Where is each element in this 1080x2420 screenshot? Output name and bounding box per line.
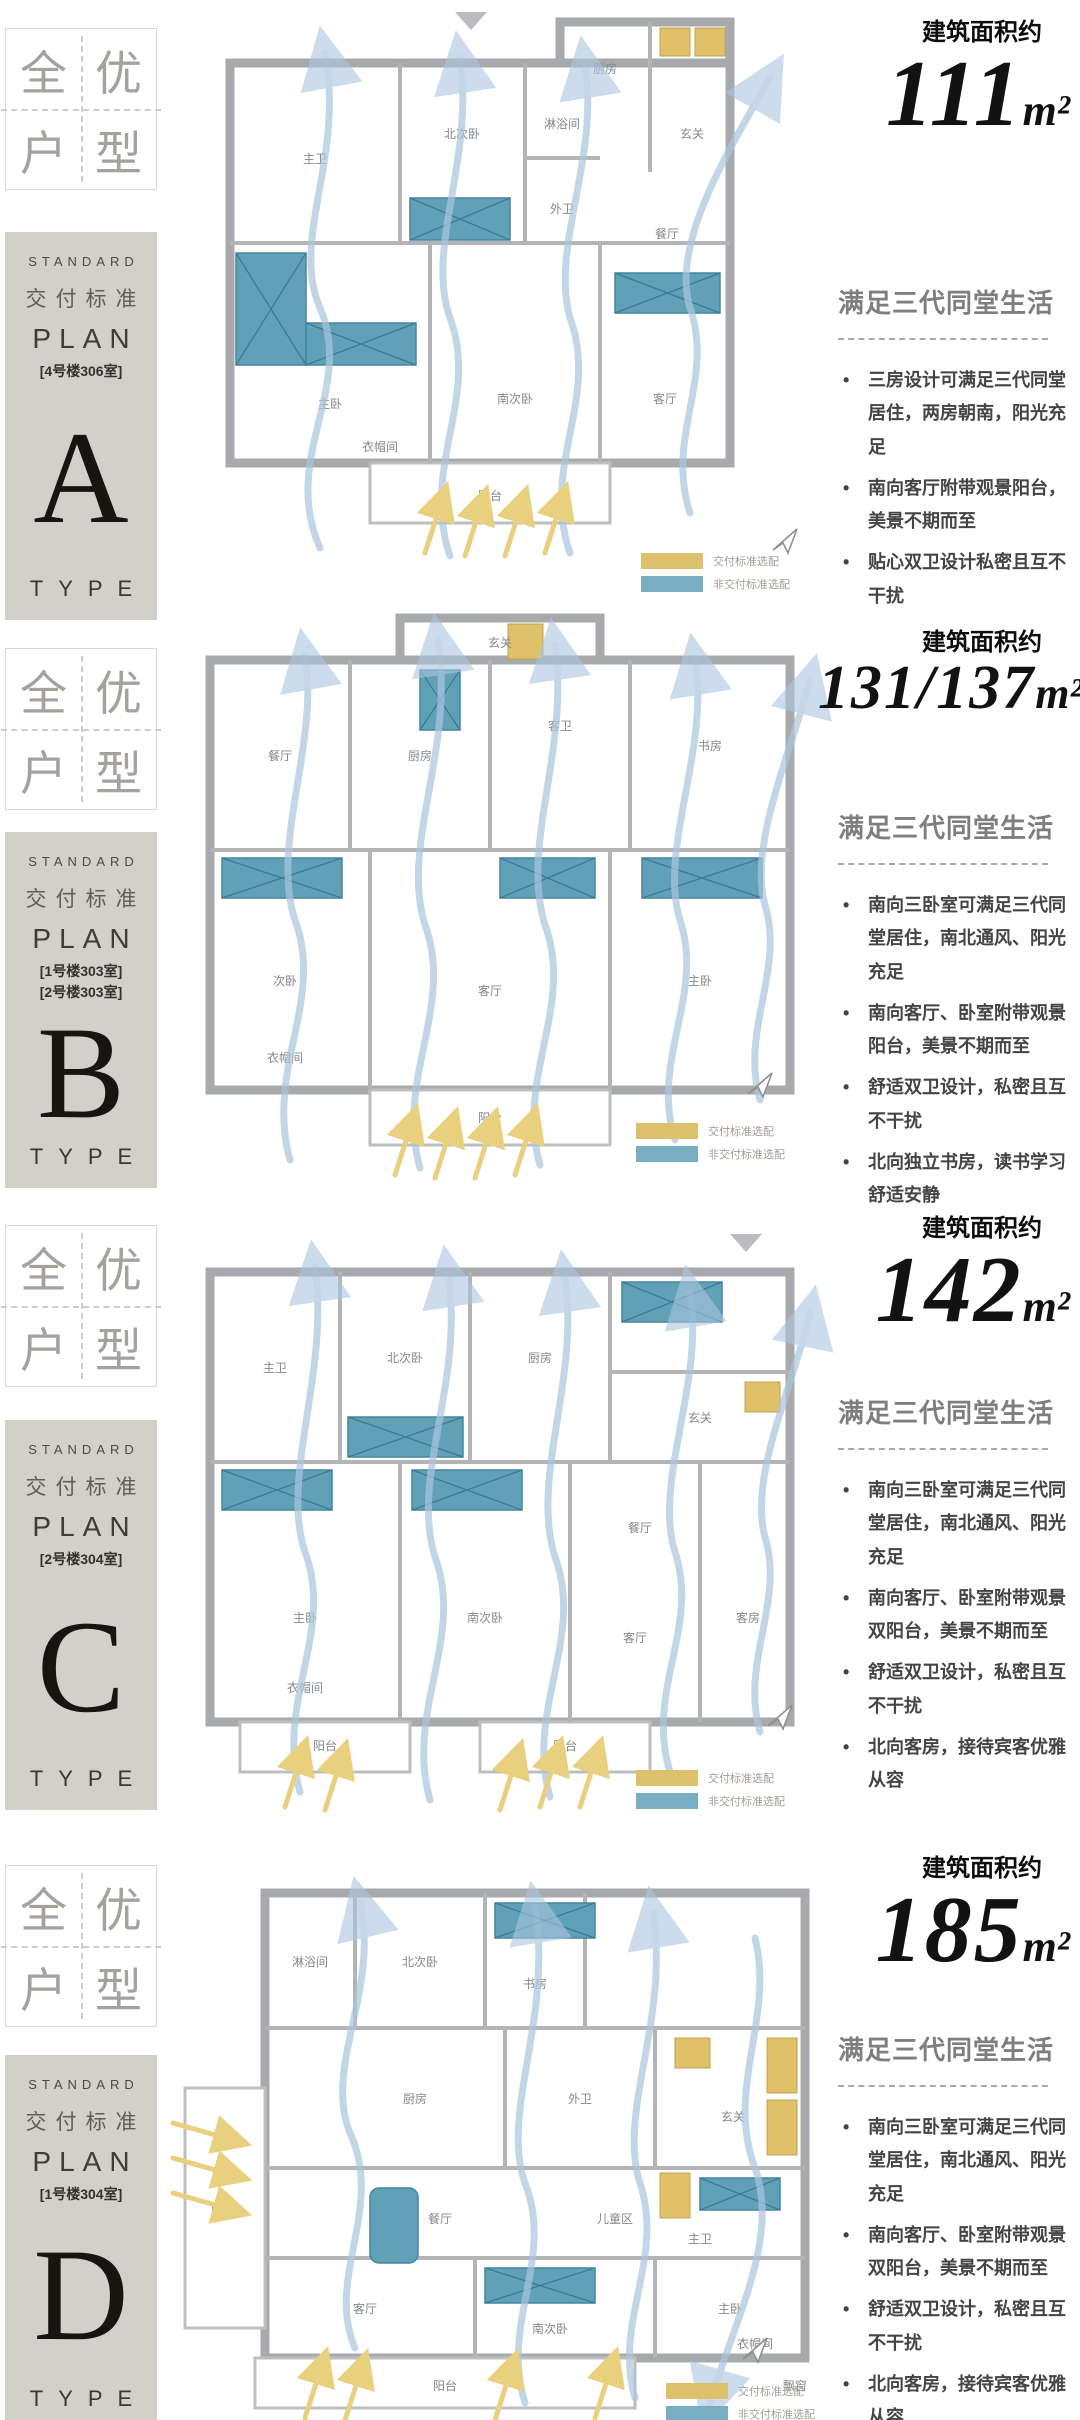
room-label: 主卧 bbox=[688, 974, 712, 988]
plate-plan-label: PLAN bbox=[24, 2146, 137, 2178]
room-label: 厨房 bbox=[403, 2091, 427, 2106]
area-figure-a: 建筑面积约 111m² bbox=[818, 12, 1070, 141]
feature-bullet: 三房设计可满足三代同堂居住，两房朝南，阳光充足 bbox=[838, 364, 1070, 464]
floor-plan-d: 淋浴间 北次卧 书房 厨房 外卫 玄关 餐厅 儿童区 客厅 南次卧 主卧 主卫 … bbox=[155, 1878, 845, 2420]
plate-standard-label: STANDARD bbox=[23, 254, 139, 269]
badge-char: 型 bbox=[81, 1306, 156, 1386]
room-label: 玄关 bbox=[721, 2109, 745, 2124]
plate-type-c: STANDARD 交付标准 PLAN [2号楼304室] C TYPE bbox=[5, 1420, 157, 1810]
area-value: 111 bbox=[886, 42, 1023, 146]
area-value: 131/137 bbox=[818, 654, 1035, 722]
plate-unit-label: [2号楼304室] bbox=[40, 1550, 122, 1569]
feature-bullet: 舒适双卫设计，私密且互不干扰 bbox=[838, 1071, 1070, 1138]
feature-title: 满足三代同堂生活 bbox=[838, 808, 1070, 845]
feature-dashed-divider bbox=[838, 338, 1048, 340]
legend-nonstandard-label: 非交付标准选配 bbox=[738, 2406, 815, 2420]
legend-nonstandard-label: 非交付标准选配 bbox=[708, 1793, 785, 1809]
legend-standard-swatch bbox=[641, 553, 703, 569]
plate-type-a: STANDARD 交付标准 PLAN [4号楼306室] A TYPE bbox=[5, 232, 157, 620]
feature-title: 满足三代同堂生活 bbox=[838, 283, 1070, 320]
feature-bullet: 南向客厅、卧室附带观景双阳台，美景不期而至 bbox=[838, 2219, 1070, 2286]
room-label: 阳台 bbox=[433, 2378, 457, 2393]
plan-d-walls bbox=[185, 1893, 805, 2408]
room-label: 餐厅 bbox=[428, 2211, 452, 2226]
plate-type-word: TYPE bbox=[15, 2386, 147, 2412]
feature-bullet: 舒适双卫设计，私密且互不干扰 bbox=[838, 1656, 1070, 1723]
legend-standard-label: 交付标准选配 bbox=[708, 1770, 774, 1786]
room-label: 南次卧 bbox=[532, 2321, 568, 2336]
badge-char: 优 bbox=[81, 1866, 156, 1946]
plate-type-word: TYPE bbox=[15, 1766, 147, 1792]
badge-char: 型 bbox=[81, 1946, 156, 2026]
area-value: 185 bbox=[876, 1878, 1023, 1982]
badge-char: 全 bbox=[6, 1226, 81, 1306]
floor-plan-c-drawing: 主卫 北次卧 厨房 餐厅 玄关 主卧 南次卧 客厅 客房 衣帽间 阳台 阳台 bbox=[170, 1222, 830, 1837]
legend-nonstandard-label: 非交付标准选配 bbox=[708, 1146, 785, 1162]
plate-type-letter: D bbox=[33, 2204, 128, 2386]
room-label: 主卫 bbox=[263, 1361, 287, 1375]
area-label: 建筑面积约 bbox=[818, 622, 1070, 657]
feature-bullet: 南向三卧室可满足三代同堂居住，南北通风、阳光充足 bbox=[838, 2111, 1070, 2211]
feature-title: 满足三代同堂生活 bbox=[838, 2030, 1070, 2067]
legend-nonstandard-swatch bbox=[636, 1146, 698, 1162]
badge-char: 优 bbox=[81, 1226, 156, 1306]
room-label: 客厅 bbox=[353, 2301, 377, 2316]
plan-legend: 交付标准选配 非交付标准选配 bbox=[636, 1116, 785, 1162]
legend-standard-swatch bbox=[666, 2383, 728, 2399]
badge-quality-type-a: 全 优 户 型 bbox=[5, 28, 157, 190]
plate-type-b: STANDARD 交付标准 PLAN [1号楼303室] [2号楼303室] B… bbox=[5, 832, 157, 1188]
feature-bullet: 南向客厅、卧室附带观景双阳台，美景不期而至 bbox=[838, 1582, 1070, 1649]
badge-char: 全 bbox=[6, 29, 81, 109]
feature-dashed-divider bbox=[838, 2085, 1048, 2087]
room-label: 阳台 bbox=[313, 1738, 337, 1753]
badge-char: 全 bbox=[6, 1866, 81, 1946]
room-label: 餐厅 bbox=[655, 226, 679, 241]
room-label: 淋浴间 bbox=[544, 117, 580, 131]
room-label: 次卧 bbox=[273, 974, 297, 988]
feature-bullet: 北向客房，接待宾客优雅从容 bbox=[838, 1731, 1070, 1798]
plate-standard-label: STANDARD bbox=[23, 1442, 139, 1457]
badge-char: 优 bbox=[81, 29, 156, 109]
plan-b-standard-items bbox=[508, 624, 543, 659]
area-figure-c: 建筑面积约 142m² bbox=[818, 1208, 1070, 1337]
feature-block-d: 满足三代同堂生活 南向三卧室可满足三代同堂居住，南北通风、阳光充足 南向客厅、卧… bbox=[838, 2030, 1070, 2420]
feature-bullet: 南向三卧室可满足三代同堂居住，南北通风、阳光充足 bbox=[838, 889, 1070, 989]
plate-standard-label: STANDARD bbox=[23, 854, 139, 869]
feature-bullet: 南向客厅附带观景阳台，美景不期而至 bbox=[838, 472, 1070, 539]
plate-type-word: TYPE bbox=[15, 576, 147, 602]
area-figure-b: 建筑面积约 131/137m² bbox=[818, 622, 1070, 719]
plate-delivery-label: 交付标准 bbox=[17, 283, 146, 313]
north-triangle-icon bbox=[730, 1234, 762, 1252]
area-unit: m² bbox=[1023, 1282, 1070, 1331]
room-label: 淋浴间 bbox=[292, 1955, 328, 1969]
feature-bullet: 南向三卧室可满足三代同堂居住，南北通风、阳光充足 bbox=[838, 1474, 1070, 1574]
area-unit: m² bbox=[1023, 1922, 1070, 1971]
feature-block-c: 满足三代同堂生活 南向三卧室可满足三代同堂居住，南北通风、阳光充足 南向客厅、卧… bbox=[838, 1393, 1070, 1806]
room-label: 餐厅 bbox=[628, 1520, 652, 1535]
plate-type-word: TYPE bbox=[15, 1144, 147, 1170]
pointer-icon bbox=[765, 1702, 795, 1732]
plate-type-letter: C bbox=[37, 1569, 125, 1766]
room-label: 玄关 bbox=[688, 1410, 712, 1425]
room-label: 衣帽间 bbox=[267, 1050, 303, 1065]
room-label: 餐厅 bbox=[268, 748, 292, 763]
room-label: 外卫 bbox=[568, 2092, 592, 2106]
feature-dashed-divider bbox=[838, 1448, 1048, 1450]
badge-char: 户 bbox=[6, 729, 81, 809]
room-label: 南次卧 bbox=[497, 391, 533, 406]
pointer-icon bbox=[740, 2335, 770, 2365]
room-label: 客卫 bbox=[548, 718, 572, 733]
plan-legend: 交付标准选配 非交付标准选配 bbox=[636, 1763, 785, 1809]
room-label: 客厅 bbox=[478, 983, 502, 998]
badge-dashed-divider bbox=[81, 1873, 83, 2019]
area-unit: m² bbox=[1035, 669, 1080, 718]
feature-bullet: 贴心双卫设计私密且互不干扰 bbox=[838, 546, 1070, 613]
plate-unit-label: [4号楼306室] bbox=[40, 362, 122, 381]
legend-nonstandard-swatch bbox=[666, 2406, 728, 2420]
plan-legend: 交付标准选配 非交付标准选配 bbox=[641, 546, 790, 592]
badge-dashed-divider bbox=[81, 656, 83, 802]
room-label: 北次卧 bbox=[402, 1955, 438, 1969]
plate-plan-label: PLAN bbox=[24, 323, 137, 355]
badge-dashed-divider bbox=[81, 36, 83, 182]
feature-bullet-list: 三房设计可满足三代同堂居住，两房朝南，阳光充足 南向客厅附带观景阳台，美景不期而… bbox=[838, 364, 1070, 613]
feature-block-b: 满足三代同堂生活 南向三卧室可满足三代同堂居住，南北通风、阳光充足 南向客厅、卧… bbox=[838, 808, 1070, 1221]
room-label: 厨房 bbox=[593, 61, 617, 76]
feature-title: 满足三代同堂生活 bbox=[838, 1393, 1070, 1430]
floor-plan-a: 主卫 北次卧 淋浴间 外卫 厨房 玄关 餐厅 主卧 衣帽间 南次卧 客厅 阳台 bbox=[170, 8, 830, 596]
plate-type-letter: B bbox=[37, 1002, 125, 1144]
badge-char: 优 bbox=[81, 649, 156, 729]
plate-plan-label: PLAN bbox=[24, 1511, 137, 1543]
brochure-page: 全 优 户 型 STANDARD 交付标准 PLAN [4号楼306室] A T… bbox=[0, 0, 1080, 2420]
legend-standard-label: 交付标准选配 bbox=[708, 1123, 774, 1139]
plate-delivery-label: 交付标准 bbox=[17, 2106, 146, 2136]
room-label: 客房 bbox=[736, 1610, 760, 1625]
badge-char: 型 bbox=[81, 109, 156, 189]
badge-char: 户 bbox=[6, 109, 81, 189]
floor-plan-c: 主卫 北次卧 厨房 餐厅 玄关 主卧 南次卧 客厅 客房 衣帽间 阳台 阳台 bbox=[170, 1222, 830, 1837]
plate-unit-label: [1号楼304室] bbox=[40, 2185, 122, 2204]
badge-quality-type-d: 全 优 户 型 bbox=[5, 1865, 157, 2027]
room-label: 玄关 bbox=[488, 635, 512, 650]
legend-nonstandard-swatch bbox=[641, 576, 703, 592]
badge-quality-type-c: 全 优 户 型 bbox=[5, 1225, 157, 1387]
room-label: 玄关 bbox=[680, 126, 704, 141]
room-label: 阳台 bbox=[553, 1738, 577, 1753]
feature-bullet-list: 南向三卧室可满足三代同堂居住，南北通风、阳光充足 南向客厅、卧室附带观景双阳台，… bbox=[838, 2111, 1070, 2420]
feature-bullet: 北向客房，接待宾客优雅从容 bbox=[838, 2368, 1070, 2420]
feature-dashed-divider bbox=[838, 863, 1048, 865]
badge-char: 全 bbox=[6, 649, 81, 729]
room-label: 主卫 bbox=[688, 2232, 712, 2246]
feature-bullet: 南向客厅、卧室附带观景阳台，美景不期而至 bbox=[838, 997, 1070, 1064]
legend-standard-swatch bbox=[636, 1123, 698, 1139]
area-value: 142 bbox=[876, 1238, 1023, 1342]
legend-standard-label: 交付标准选配 bbox=[738, 2383, 804, 2399]
room-label: 阳台 bbox=[478, 1110, 502, 1125]
room-label: 厨房 bbox=[408, 748, 432, 763]
room-label: 北次卧 bbox=[387, 1351, 423, 1365]
badge-quality-type-b: 全 优 户 型 bbox=[5, 648, 157, 810]
feature-bullet-list: 南向三卧室可满足三代同堂居住，南北通风、阳光充足 南向客厅、卧室附带观景阳台，美… bbox=[838, 889, 1070, 1213]
plate-delivery-label: 交付标准 bbox=[17, 883, 146, 913]
room-label: 客厅 bbox=[623, 1630, 647, 1645]
pointer-icon bbox=[745, 1070, 775, 1100]
plate-standard-label: STANDARD bbox=[23, 2077, 139, 2092]
legend-standard-label: 交付标准选配 bbox=[713, 553, 779, 569]
floor-plan-b-drawing: 餐厅 厨房 客卫 书房 玄关 次卧 客厅 主卧 衣帽间 阳台 bbox=[170, 600, 830, 1200]
feature-bullet: 北向独立书房，读书学习舒适安静 bbox=[838, 1146, 1070, 1213]
floor-plan-b: 餐厅 厨房 客卫 书房 玄关 次卧 客厅 主卧 衣帽间 阳台 bbox=[170, 600, 830, 1200]
feature-block-a: 满足三代同堂生活 三房设计可满足三代同堂居住，两房朝南，阳光充足 南向客厅附带观… bbox=[838, 283, 1070, 621]
floor-plan-a-drawing: 主卫 北次卧 淋浴间 外卫 厨房 玄关 餐厅 主卧 衣帽间 南次卧 客厅 阳台 bbox=[170, 8, 830, 596]
plate-unit-label: [1号楼303室] bbox=[40, 962, 122, 981]
feature-bullet-list: 南向三卧室可满足三代同堂居住，南北通风、阳光充足 南向客厅、卧室附带观景双阳台，… bbox=[838, 1474, 1070, 1798]
room-label: 儿童区 bbox=[597, 2211, 633, 2226]
room-label: 衣帽间 bbox=[362, 439, 398, 454]
plate-plan-label: PLAN bbox=[24, 923, 137, 955]
area-figure-d: 建筑面积约 185m² bbox=[818, 1848, 1070, 1977]
plan-c-standard-items bbox=[745, 1382, 780, 1412]
legend-nonstandard-swatch bbox=[636, 1793, 698, 1809]
badge-char: 户 bbox=[6, 1306, 81, 1386]
legend-nonstandard-label: 非交付标准选配 bbox=[713, 576, 790, 592]
room-label: 客厅 bbox=[653, 391, 677, 406]
room-label: 厨房 bbox=[528, 1350, 552, 1365]
badge-char: 户 bbox=[6, 1946, 81, 2026]
area-unit: m² bbox=[1023, 86, 1070, 135]
north-triangle-icon bbox=[455, 12, 487, 30]
room-label: 书房 bbox=[698, 738, 722, 753]
plan-legend: 交付标准选配 非交付标准选配 bbox=[666, 2376, 815, 2420]
plate-type-letter: A bbox=[33, 381, 128, 576]
badge-dashed-divider bbox=[81, 1233, 83, 1379]
plate-delivery-label: 交付标准 bbox=[17, 1471, 146, 1501]
feature-bullet: 舒适双卫设计，私密且互不干扰 bbox=[838, 2293, 1070, 2360]
room-label: 南次卧 bbox=[467, 1610, 503, 1625]
legend-standard-swatch bbox=[636, 1770, 698, 1786]
badge-char: 型 bbox=[81, 729, 156, 809]
plate-type-d: STANDARD 交付标准 PLAN [1号楼304室] D TYPE bbox=[5, 2055, 157, 2420]
